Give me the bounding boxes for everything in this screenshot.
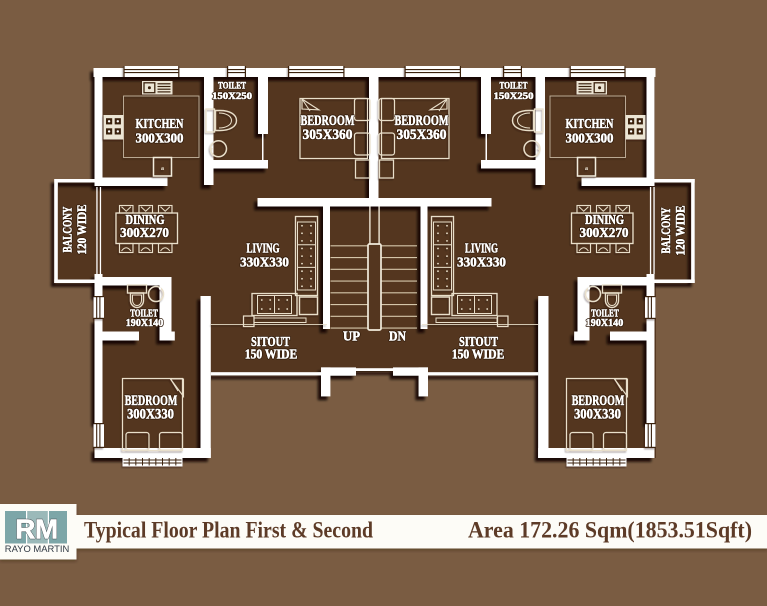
svg-text:300X300: 300X300 bbox=[566, 132, 614, 147]
svg-text:190X140: 190X140 bbox=[126, 317, 164, 329]
svg-text:Area 172.26 Sqm(1853.51Sqft): Area 172.26 Sqm(1853.51Sqft) bbox=[468, 518, 752, 543]
svg-text:LIVING: LIVING bbox=[465, 242, 498, 257]
svg-text:330X330: 330X330 bbox=[457, 256, 506, 271]
svg-text:120 WIDE: 120 WIDE bbox=[674, 206, 688, 256]
svg-text:UP: UP bbox=[343, 330, 360, 345]
svg-text:LIVING: LIVING bbox=[247, 242, 280, 257]
svg-text:a: a bbox=[585, 166, 588, 172]
svg-text:300X330: 300X330 bbox=[127, 406, 174, 422]
svg-text:RAYO MARTIN: RAYO MARTIN bbox=[5, 544, 70, 554]
svg-text:Typical Floor Plan First & Sec: Typical Floor Plan First & Second bbox=[84, 518, 373, 543]
svg-text:DN: DN bbox=[389, 330, 406, 345]
svg-text:RM: RM bbox=[15, 514, 58, 545]
svg-text:330X330: 330X330 bbox=[240, 256, 289, 271]
svg-text:BALCONY: BALCONY bbox=[659, 207, 673, 253]
svg-text:120 WIDE: 120 WIDE bbox=[75, 205, 89, 255]
svg-text:150X250: 150X250 bbox=[494, 91, 534, 102]
svg-text:150X250: 150X250 bbox=[212, 91, 252, 102]
svg-text:300X270: 300X270 bbox=[120, 225, 169, 240]
svg-text:BALCONY: BALCONY bbox=[61, 206, 75, 252]
svg-text:300X270: 300X270 bbox=[580, 225, 629, 240]
svg-text:300X300: 300X300 bbox=[136, 132, 184, 147]
svg-text:a: a bbox=[161, 166, 164, 172]
svg-text:300X330: 300X330 bbox=[574, 406, 621, 422]
svg-text:150 WIDE: 150 WIDE bbox=[245, 346, 298, 361]
svg-text:150 WIDE: 150 WIDE bbox=[452, 346, 505, 361]
svg-text:190X140: 190X140 bbox=[586, 317, 624, 329]
svg-text:305X360: 305X360 bbox=[303, 127, 353, 143]
svg-text:305X360: 305X360 bbox=[397, 127, 447, 143]
svg-text:KITCHEN: KITCHEN bbox=[566, 117, 614, 132]
svg-text:KITCHEN: KITCHEN bbox=[136, 117, 184, 132]
